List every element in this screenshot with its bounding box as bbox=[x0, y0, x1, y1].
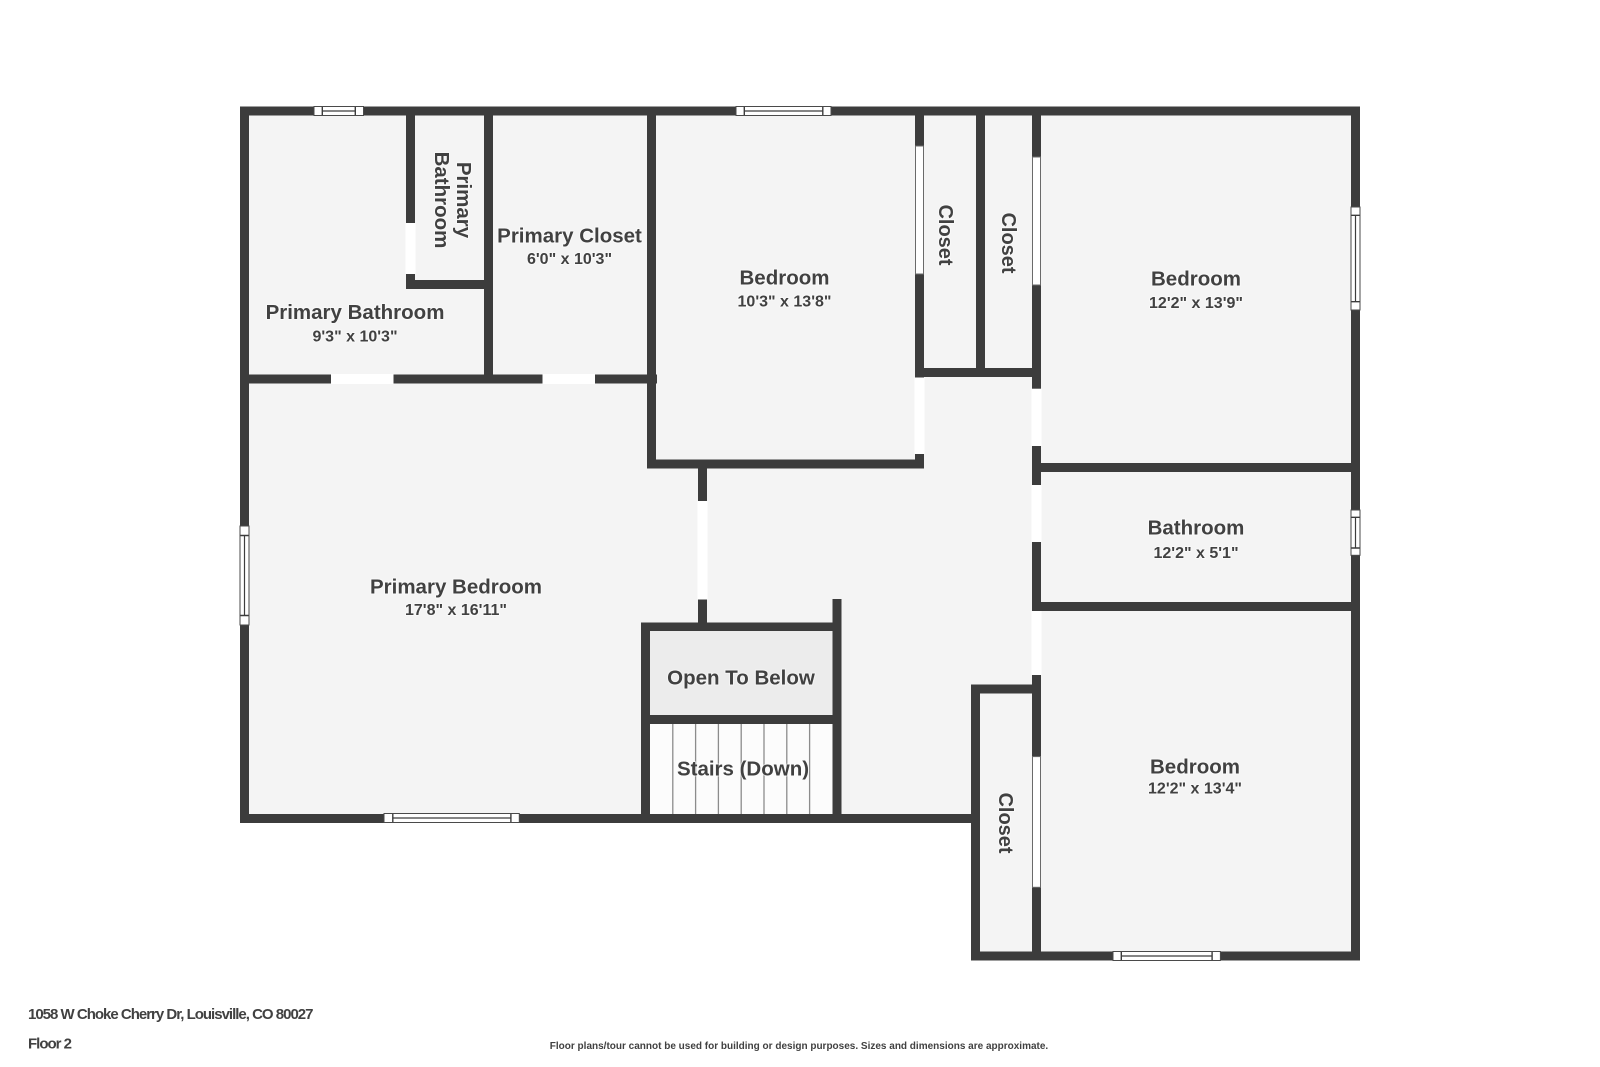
svg-text:17'8" x 16'11": 17'8" x 16'11" bbox=[405, 602, 507, 619]
svg-text:9'3" x 10'3": 9'3" x 10'3" bbox=[312, 329, 397, 346]
svg-text:Bedroom: Bedroom bbox=[1151, 267, 1241, 290]
svg-text:10'3" x 13'8": 10'3" x 13'8" bbox=[738, 293, 832, 310]
svg-text:6'0" x 10'3": 6'0" x 10'3" bbox=[527, 251, 612, 268]
svg-text:Bathroom: Bathroom bbox=[1148, 516, 1245, 539]
svg-text:12'2" x 13'9": 12'2" x 13'9" bbox=[1149, 295, 1243, 312]
svg-text:Stairs (Down): Stairs (Down) bbox=[677, 757, 809, 780]
svg-text:Closet: Closet bbox=[994, 792, 1016, 853]
svg-text:Bathroom: Bathroom bbox=[430, 152, 453, 249]
svg-text:Open To Below: Open To Below bbox=[667, 666, 815, 689]
svg-text:Primary Bedroom: Primary Bedroom bbox=[370, 575, 542, 598]
svg-text:Bedroom: Bedroom bbox=[740, 266, 830, 289]
svg-text:Floor plans/tour cannot be use: Floor plans/tour cannot be used for buil… bbox=[550, 1041, 1049, 1052]
svg-text:1058 W Choke Cherry Dr, Louisv: 1058 W Choke Cherry Dr, Louisville, CO 8… bbox=[28, 1006, 313, 1023]
svg-text:12'2" x 13'4": 12'2" x 13'4" bbox=[1148, 781, 1242, 798]
svg-text:Primary Bathroom: Primary Bathroom bbox=[266, 301, 445, 324]
svg-text:Bedroom: Bedroom bbox=[1150, 756, 1240, 779]
svg-text:Primary Closet: Primary Closet bbox=[497, 224, 642, 247]
svg-text:Closet: Closet bbox=[997, 212, 1019, 273]
svg-text:12'2" x 5'1": 12'2" x 5'1" bbox=[1153, 545, 1238, 562]
svg-text:Closet: Closet bbox=[934, 204, 956, 265]
svg-text:Primary: Primary bbox=[452, 162, 475, 239]
svg-text:Floor 2: Floor 2 bbox=[28, 1036, 72, 1053]
